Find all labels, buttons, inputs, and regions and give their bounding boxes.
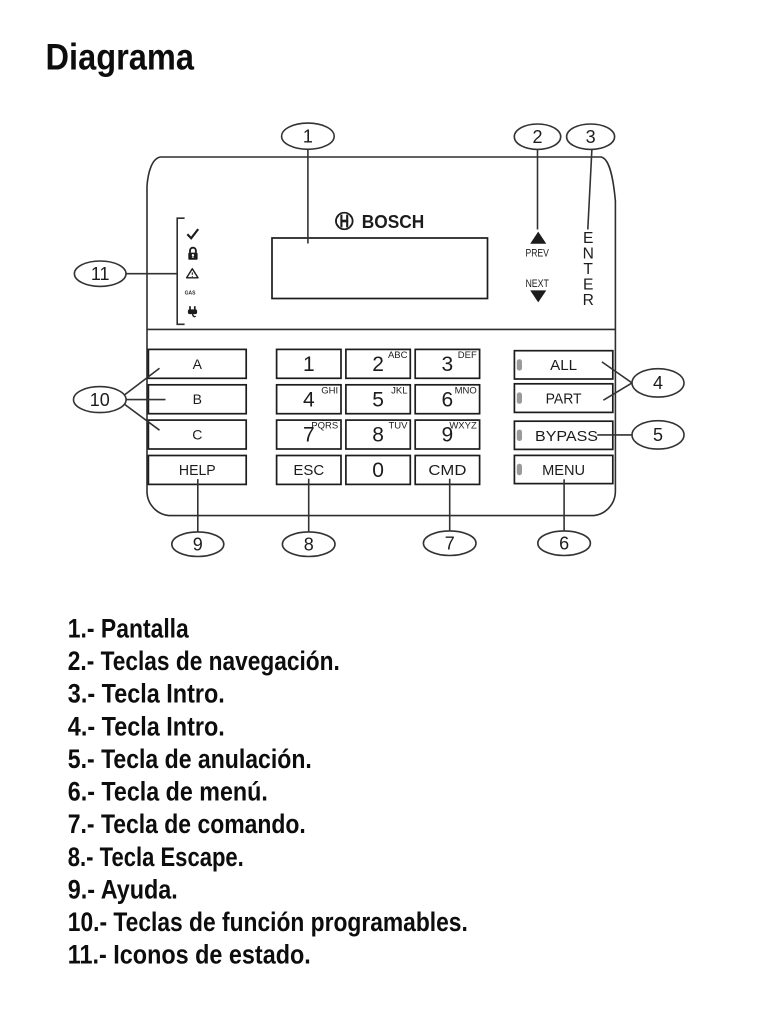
svg-text:4: 4 [653, 373, 663, 393]
svg-text:BYPASS: BYPASS [535, 428, 598, 445]
svg-text:T: T [583, 261, 593, 278]
svg-text:1: 1 [303, 353, 315, 376]
svg-text:PREV: PREV [525, 248, 549, 260]
svg-text:4: 4 [303, 388, 315, 411]
svg-text:3.- Tecla Intro.: 3.- Tecla Intro. [68, 679, 225, 709]
svg-text:PQRS: PQRS [311, 421, 338, 432]
svg-text:7.- Tecla de comando.: 7.- Tecla de comando. [68, 809, 306, 839]
svg-text:8: 8 [372, 424, 384, 447]
svg-text:JKL: JKL [391, 385, 407, 396]
svg-text:CMD: CMD [428, 462, 466, 479]
svg-text:5.- Tecla de anulación.: 5.- Tecla de anulación. [68, 744, 312, 774]
svg-text:9: 9 [193, 534, 203, 554]
svg-text:5: 5 [653, 425, 663, 445]
svg-text:PART: PART [546, 391, 582, 408]
svg-text:WXYZ: WXYZ [449, 421, 477, 432]
svg-text:3: 3 [442, 353, 454, 376]
svg-text:MNO: MNO [455, 385, 477, 396]
svg-text:8: 8 [304, 534, 314, 554]
svg-text:9.- Ayuda.: 9.- Ayuda. [68, 875, 178, 905]
svg-text:DEF: DEF [458, 350, 477, 361]
svg-text:BOSCH: BOSCH [362, 211, 425, 232]
svg-text:GHI: GHI [321, 385, 338, 396]
svg-text:5: 5 [372, 388, 384, 411]
svg-text:11.- Iconos de estado.: 11.- Iconos de estado. [68, 940, 311, 970]
svg-text:C: C [192, 427, 202, 443]
svg-text:6.- Tecla de menú.: 6.- Tecla de menú. [68, 777, 268, 807]
svg-text:8.- Tecla Escape.: 8.- Tecla Escape. [68, 842, 244, 872]
svg-text:Diagrama: Diagrama [46, 36, 195, 78]
svg-text:10: 10 [90, 390, 110, 410]
svg-text:E: E [583, 276, 593, 293]
svg-text:ABC: ABC [388, 350, 408, 361]
svg-text:6: 6 [559, 533, 569, 553]
svg-text:ALL: ALL [550, 357, 577, 374]
svg-text:1: 1 [303, 126, 313, 146]
svg-text:N: N [583, 245, 594, 262]
svg-text:MENU: MENU [542, 462, 585, 479]
svg-text:TUV: TUV [389, 421, 409, 432]
svg-text:A: A [193, 356, 203, 372]
svg-text:2: 2 [532, 127, 542, 147]
svg-text:4.- Tecla Intro.: 4.- Tecla Intro. [68, 711, 225, 741]
svg-text:6: 6 [442, 388, 454, 411]
svg-text:1.- Pantalla: 1.- Pantalla [68, 613, 190, 643]
svg-text:2: 2 [372, 353, 384, 376]
svg-text:B: B [193, 391, 202, 407]
svg-text:ESC: ESC [293, 462, 324, 479]
svg-text:E: E [583, 230, 593, 247]
svg-text:11: 11 [91, 264, 110, 284]
svg-text:3: 3 [586, 127, 596, 147]
svg-text:HELP: HELP [179, 462, 216, 479]
svg-text:10.- Teclas de función program: 10.- Teclas de función programables. [68, 907, 468, 937]
svg-text:R: R [583, 292, 594, 309]
svg-text:2.- Teclas de navegación.: 2.- Teclas de navegación. [68, 646, 340, 676]
svg-text:GAS: GAS [185, 291, 196, 297]
svg-text:7: 7 [445, 533, 455, 553]
svg-text:0: 0 [372, 459, 384, 482]
svg-text:NEXT: NEXT [525, 278, 549, 290]
